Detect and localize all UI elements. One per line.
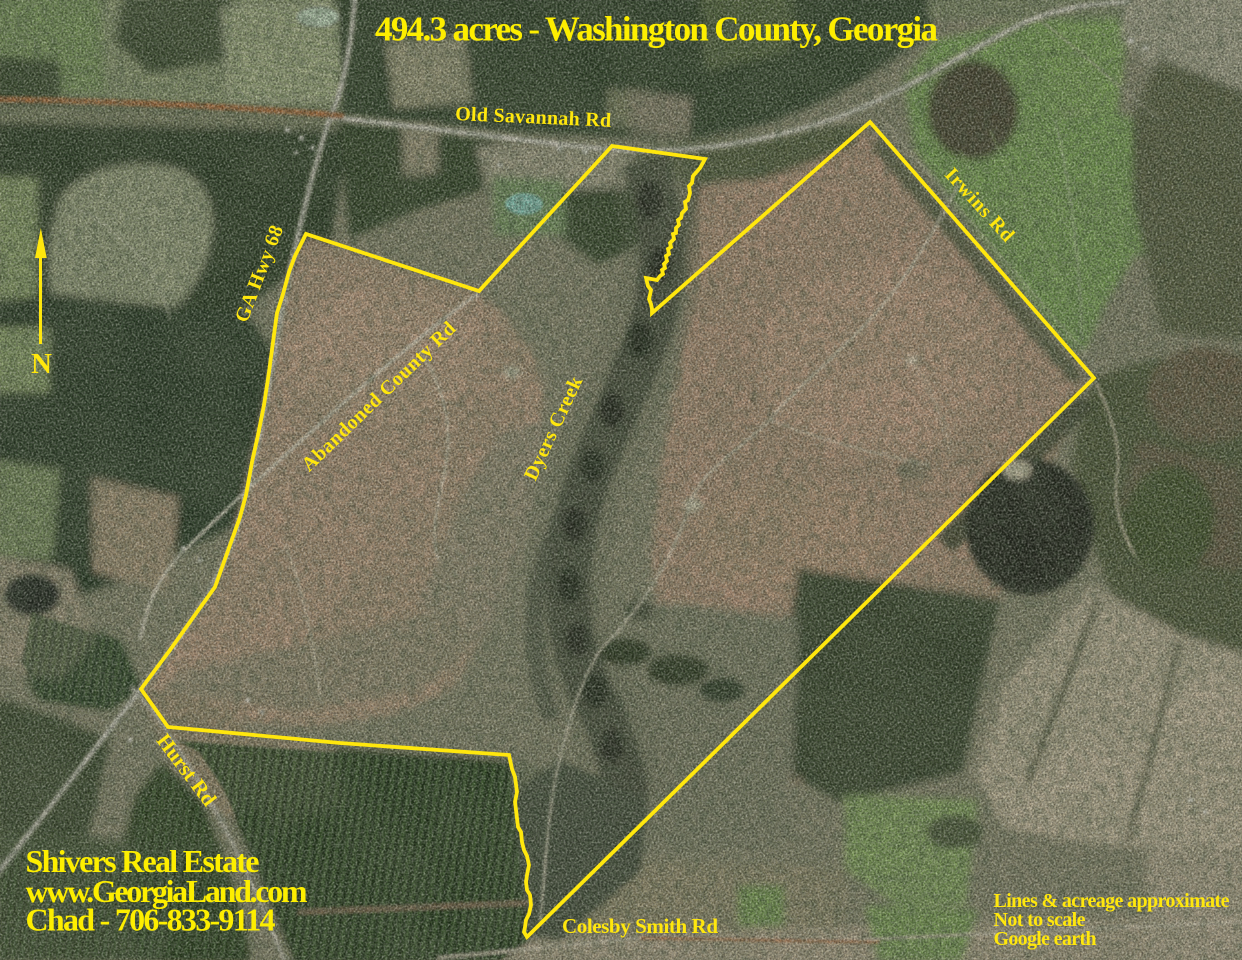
svg-text:Colesby Smith Rd: Colesby Smith Rd <box>562 914 718 938</box>
svg-text:Google earth: Google earth <box>994 928 1097 950</box>
svg-text:494.3 acres - Washington Count: 494.3 acres - Washington County, Georgia <box>375 10 938 49</box>
svg-text:Chad - 706-833-9114: Chad - 706-833-9114 <box>26 902 276 938</box>
svg-text:N: N <box>31 348 52 380</box>
